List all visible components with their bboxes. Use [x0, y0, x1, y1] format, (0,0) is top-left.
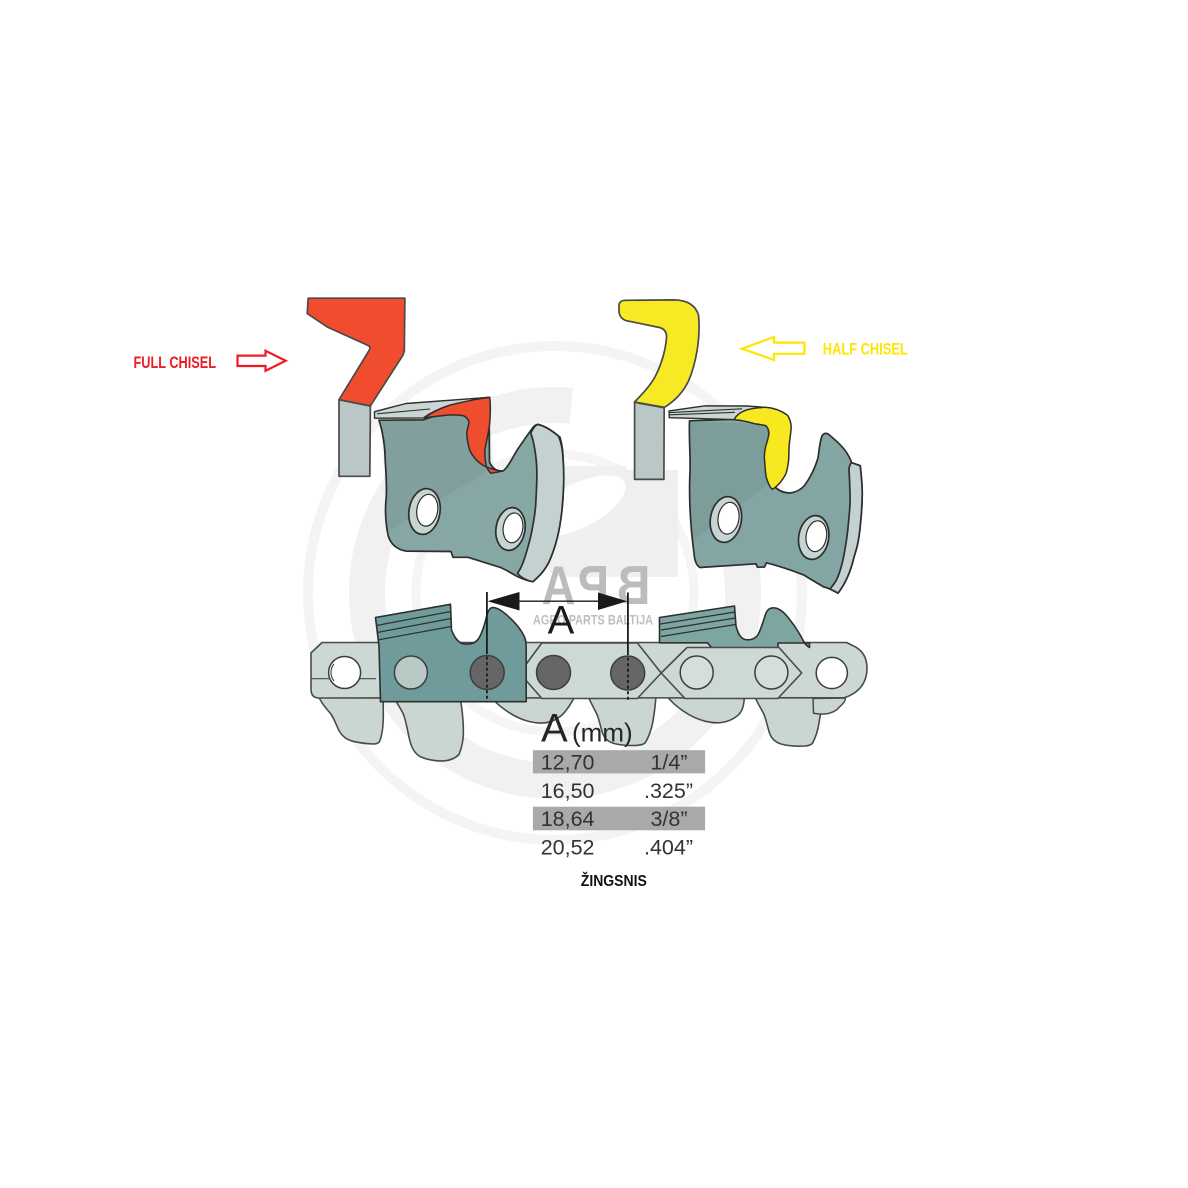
svg-text:1/4”: 1/4”: [650, 751, 687, 775]
svg-text:18,64: 18,64: [541, 807, 595, 831]
svg-text:FULL CHISEL: FULL CHISEL: [134, 354, 217, 372]
svg-text:A: A: [548, 599, 575, 643]
svg-text:3/8”: 3/8”: [650, 807, 687, 831]
svg-text:.325”: .325”: [644, 779, 693, 803]
svg-text:HALF CHISEL: HALF CHISEL: [823, 341, 908, 359]
svg-text:B: B: [617, 554, 651, 615]
svg-text:ŽINGSNIS: ŽINGSNIS: [581, 872, 647, 890]
svg-text:A: A: [541, 706, 568, 750]
svg-text:16,50: 16,50: [541, 779, 595, 803]
svg-text:.404”: .404”: [644, 835, 693, 859]
svg-text:12,70: 12,70: [541, 751, 595, 775]
svg-text:(mm): (mm): [572, 717, 633, 747]
svg-text:20,52: 20,52: [541, 835, 595, 859]
